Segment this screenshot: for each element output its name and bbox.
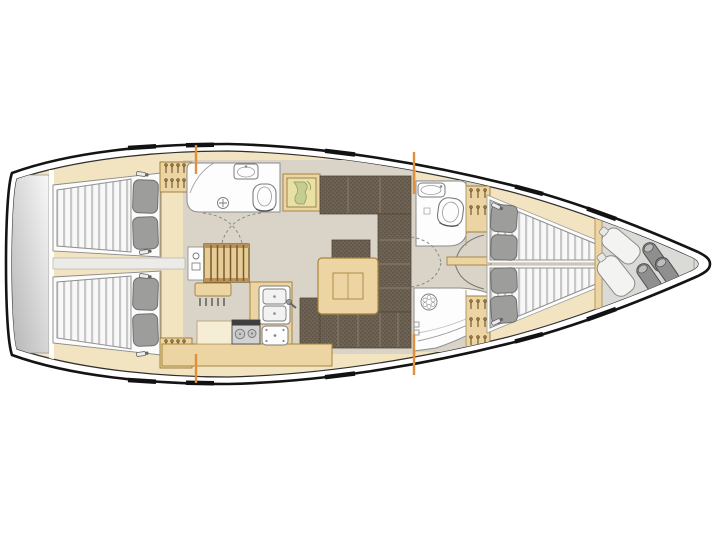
aft-cabin-port <box>53 171 161 257</box>
floor-plan-canvas <box>0 0 717 534</box>
worktop <box>197 321 232 344</box>
galley-counter-aft <box>162 344 332 366</box>
yacht-floor-plan <box>0 0 717 534</box>
fridge <box>262 326 288 345</box>
aft-cabin-starboard <box>53 271 161 357</box>
settee-port <box>320 176 411 214</box>
washbasin <box>418 183 445 197</box>
door-panel <box>447 257 491 265</box>
settee-corner <box>378 214 411 312</box>
toilet <box>253 184 276 211</box>
engine-compartment <box>53 258 185 269</box>
stove <box>232 320 260 344</box>
sink-drain <box>273 312 276 315</box>
mattress <box>57 276 131 349</box>
hatch-mark <box>128 380 156 382</box>
pillow <box>132 278 158 311</box>
forward-head <box>416 181 467 246</box>
pillow <box>132 217 158 250</box>
shower-rose-icon <box>421 294 437 310</box>
pillow <box>490 204 518 233</box>
saloon-table <box>318 258 378 314</box>
pillow <box>491 268 518 294</box>
pillow <box>490 295 518 324</box>
stove-knob-band <box>232 320 260 326</box>
galley-sinks <box>259 286 296 324</box>
pillow <box>132 314 158 347</box>
mattress <box>57 179 131 252</box>
chart-table <box>283 174 320 211</box>
washbasin <box>234 164 258 179</box>
settee-starboard <box>320 312 411 348</box>
pillow <box>132 180 158 214</box>
pillow <box>491 235 518 261</box>
fridge-handle <box>274 334 277 337</box>
swim-platform-deck <box>11 175 49 353</box>
panel-box <box>188 247 204 280</box>
hatch-mark <box>128 146 156 148</box>
shower-drain-icon <box>218 198 229 209</box>
hanging-locker-forward-port <box>466 186 490 232</box>
toilet <box>436 196 465 227</box>
settee-starboard-end <box>300 298 320 348</box>
swim-platform <box>11 170 54 360</box>
sink-drain <box>273 295 276 298</box>
aft-head <box>187 163 280 212</box>
shelf <box>195 283 231 296</box>
